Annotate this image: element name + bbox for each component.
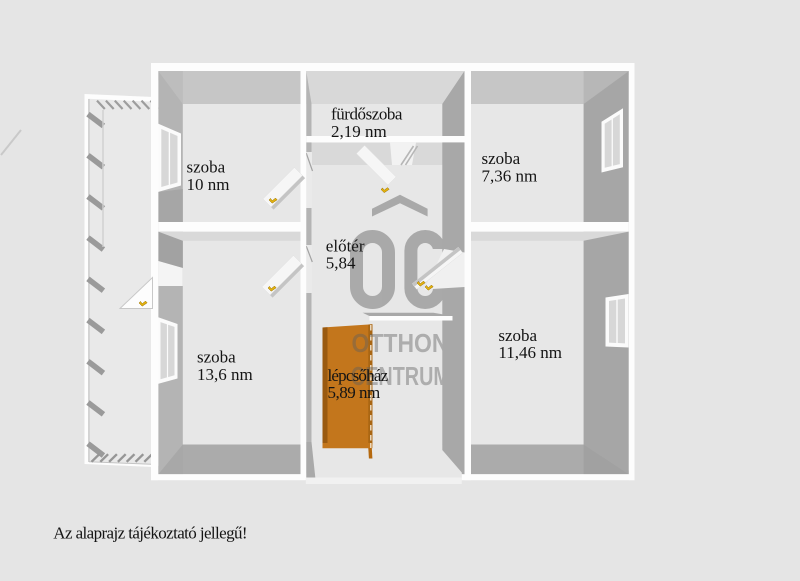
svg-text:13,6 nm: 13,6 nm [197, 365, 253, 384]
svg-text:5,84: 5,84 [326, 254, 356, 273]
svg-text:OTTHON: OTTHON [352, 330, 449, 358]
svg-text:11,46 nm: 11,46 nm [498, 343, 562, 362]
svg-text:szoba: szoba [197, 348, 236, 367]
svg-text:5,89 nm: 5,89 nm [328, 383, 381, 402]
svg-text:7,36 nm: 7,36 nm [482, 166, 538, 185]
svg-text:fürdőszoba: fürdőszoba [331, 105, 403, 124]
svg-text:szoba: szoba [482, 149, 521, 168]
svg-text:10 nm: 10 nm [187, 175, 230, 194]
svg-text:Az alaprajz tájékoztató jelleg: Az alaprajz tájékoztató jellegű! [53, 524, 247, 543]
svg-text:szoba: szoba [187, 158, 226, 177]
svg-text:2,19 nm: 2,19 nm [331, 122, 387, 141]
